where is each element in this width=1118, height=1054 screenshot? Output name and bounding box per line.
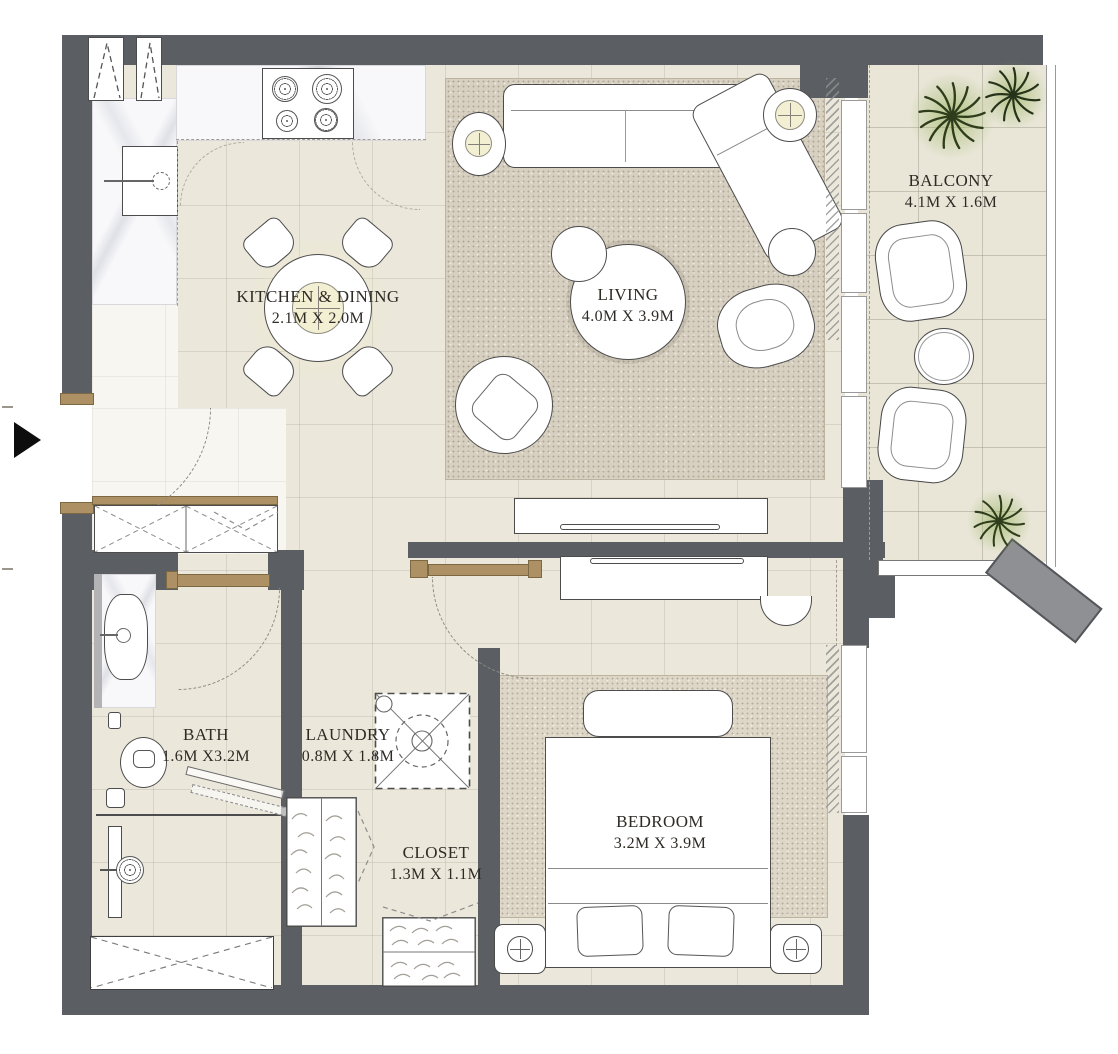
room-dims: 4.1M X 1.6M bbox=[905, 193, 997, 214]
room-name: KITCHEN & DINING bbox=[236, 286, 399, 308]
tv-bedroom bbox=[590, 558, 744, 564]
floor-plan: KITCHEN & DINING 2.1M X 2.0M LIVING 4.0M… bbox=[0, 0, 1118, 1054]
window bbox=[841, 756, 867, 813]
coffee-table-small bbox=[551, 226, 607, 282]
shaft-triangle bbox=[137, 38, 163, 102]
shower-head bbox=[116, 856, 144, 884]
wall-top bbox=[62, 35, 1043, 65]
stove-burner bbox=[276, 110, 298, 132]
laundry-label: LAUNDRY 0.8M X 1.8M bbox=[302, 724, 394, 768]
shaft-box bbox=[90, 936, 274, 990]
room-name: BATH bbox=[162, 724, 250, 746]
bedroom-door-panel bbox=[428, 564, 530, 576]
stove-burner bbox=[272, 76, 298, 102]
bedroom-door-jamb-right bbox=[528, 560, 542, 578]
room-dims: 2.1M X 2.0M bbox=[236, 309, 399, 330]
window bbox=[841, 396, 867, 488]
room-dims: 1.3M X 1.1M bbox=[390, 865, 482, 886]
bedroom-label: BEDROOM 3.2M X 3.9M bbox=[614, 811, 706, 855]
vanity-backsplash bbox=[94, 574, 102, 708]
bath-label: BATH 1.6M X3.2M bbox=[162, 724, 250, 768]
side-table-round bbox=[768, 228, 816, 276]
window bbox=[841, 296, 867, 393]
kitchen-dining-label: KITCHEN & DINING 2.1M X 2.0M bbox=[236, 286, 399, 330]
plant-icon bbox=[969, 491, 1029, 551]
nightstand-lamp bbox=[507, 936, 533, 962]
shaft bbox=[88, 37, 124, 101]
shaft bbox=[136, 37, 162, 101]
toilet-seat bbox=[133, 750, 155, 768]
laundry-bifold-door bbox=[212, 508, 282, 534]
room-dims: 0.8M X 1.8M bbox=[302, 747, 394, 768]
wall-right-lower bbox=[843, 815, 869, 1015]
nightstand-lamp bbox=[783, 936, 809, 962]
bath-bin bbox=[106, 788, 125, 808]
bed-sheet-line bbox=[548, 903, 768, 904]
tv-living bbox=[560, 524, 720, 530]
room-dims: 3.2M X 3.9M bbox=[614, 834, 706, 855]
wall-right-upper bbox=[843, 480, 883, 568]
window bbox=[841, 100, 867, 210]
room-name: BEDROOM bbox=[614, 811, 706, 833]
wall-right-mid bbox=[843, 612, 869, 648]
balcony-threshold bbox=[869, 65, 870, 560]
wall-left-lower bbox=[62, 510, 92, 1015]
vestibule-floor bbox=[92, 303, 178, 413]
cabinet-dashed-line bbox=[177, 141, 178, 306]
shower-arm bbox=[100, 869, 117, 871]
entry-arrow-icon bbox=[14, 422, 41, 458]
plant-icon bbox=[981, 63, 1045, 127]
bath-door-lintel bbox=[176, 574, 270, 587]
balcony-chair bbox=[871, 216, 972, 325]
wardrobe-bottom bbox=[382, 917, 476, 987]
bed-pillow bbox=[576, 905, 644, 957]
faucet-arm bbox=[100, 634, 118, 636]
shaft-triangle bbox=[89, 38, 125, 102]
curtain bbox=[826, 78, 839, 340]
sink-faucet bbox=[152, 172, 170, 190]
room-dims: 4.0M X 3.9M bbox=[582, 307, 674, 328]
bed-pillow bbox=[667, 905, 735, 957]
room-name: LAUNDRY bbox=[302, 724, 394, 746]
room-name: BALCONY bbox=[905, 170, 997, 192]
living-label: LIVING 4.0M X 3.9M bbox=[582, 284, 674, 328]
sink-faucet bbox=[116, 628, 131, 643]
dimension-tick bbox=[2, 406, 13, 408]
balcony-chair bbox=[874, 384, 969, 486]
shaft-x-pattern bbox=[91, 937, 272, 988]
closet-label: CLOSET 1.3M X 1.1M bbox=[390, 842, 482, 886]
bedroom-bench bbox=[583, 690, 733, 737]
entry-lintel-top bbox=[60, 393, 94, 405]
balcony-railing-right bbox=[1046, 65, 1056, 567]
table-lamp bbox=[465, 130, 492, 157]
dimension-tick bbox=[2, 568, 13, 570]
room-name: CLOSET bbox=[390, 842, 482, 864]
bed-blanket-line bbox=[548, 868, 768, 869]
entry-lintel-bottom bbox=[60, 502, 94, 514]
room-name: LIVING bbox=[582, 284, 674, 306]
cabinet-dashed-line bbox=[176, 139, 426, 140]
balcony-label: BALCONY 4.1M X 1.6M bbox=[905, 170, 997, 214]
stove-burner bbox=[312, 74, 342, 104]
window bbox=[841, 645, 867, 753]
faucet-arm bbox=[104, 180, 154, 182]
bedroom-door-jamb-left bbox=[410, 560, 428, 578]
shower-curb bbox=[96, 814, 282, 816]
curtain bbox=[826, 645, 839, 813]
wardrobe-left bbox=[286, 797, 357, 927]
balcony-table bbox=[914, 328, 974, 385]
window bbox=[841, 213, 867, 293]
bath-door-jamb bbox=[166, 571, 178, 589]
room-dims: 1.6M X3.2M bbox=[162, 747, 250, 768]
toilet-roll-holder bbox=[108, 712, 121, 729]
table-lamp bbox=[775, 100, 805, 130]
stove-burner bbox=[314, 108, 338, 132]
curtain-track bbox=[836, 560, 837, 646]
wall-bath-jamb bbox=[268, 550, 304, 590]
